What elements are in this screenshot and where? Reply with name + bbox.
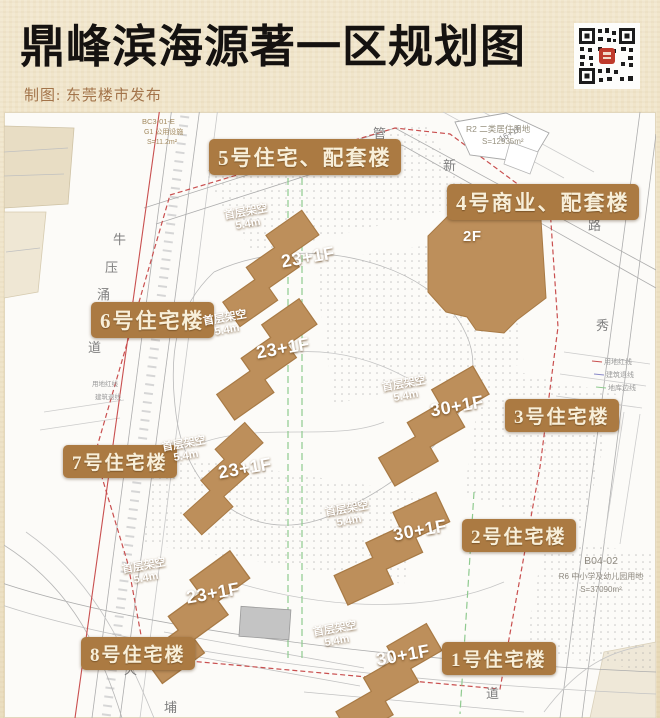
svg-text:R6 中小学及幼儿园用地: R6 中小学及幼儿园用地: [559, 571, 643, 581]
svg-text:压: 压: [105, 260, 118, 275]
svg-text:用地红线: 用地红线: [604, 357, 632, 366]
service-building: [239, 606, 291, 639]
planning-infographic: { "header": { "title": "鼎峰滨海源著一区规划图", "c…: [0, 0, 660, 718]
svg-text:路: 路: [588, 218, 601, 233]
tag-building-8: 8号住宅楼: [81, 637, 195, 670]
svg-text:B04-02: B04-02: [584, 555, 618, 567]
svg-text:地库边线: 地库边线: [608, 383, 636, 392]
svg-text:S=11.2m²: S=11.2m²: [147, 139, 178, 146]
svg-text:牛: 牛: [113, 232, 126, 247]
svg-text:埔: 埔: [164, 700, 177, 715]
svg-text:用地红线: 用地红线: [92, 379, 119, 388]
svg-text:BC3-01-E: BC3-01-E: [142, 117, 175, 126]
qr-code-icon: [576, 25, 638, 87]
svg-text:S=37090m²: S=37090m²: [580, 585, 622, 594]
svg-text:道: 道: [486, 686, 499, 701]
tag-building-7: 7号住宅楼: [63, 445, 177, 478]
svg-text:建筑退线: 建筑退线: [606, 370, 634, 379]
tag-building-6: 6号住宅楼: [91, 302, 214, 338]
svg-text:秀: 秀: [596, 318, 609, 333]
qr-pattern: [576, 25, 638, 87]
tag-building-2: 2号住宅楼: [462, 519, 576, 552]
tag-building-3: 3号住宅楼: [505, 399, 619, 432]
svg-text:G1 公用设施: G1 公用设施: [144, 127, 183, 136]
floors-building-4: 2F: [463, 228, 482, 245]
tag-building-5: 5号住宅、配套楼: [209, 139, 401, 175]
svg-text:建筑退线: 建筑退线: [95, 392, 122, 401]
credit-line: 制图: 东莞楼市发布: [24, 84, 162, 105]
svg-text:道: 道: [88, 340, 101, 355]
svg-text:涌: 涌: [97, 287, 110, 302]
qr-seal: [599, 48, 615, 64]
page-title: 鼎峰滨海源著一区规划图: [20, 24, 580, 71]
tag-building-4: 4号商业、配套楼: [447, 184, 639, 220]
svg-text:新: 新: [443, 158, 456, 173]
tag-building-1: 1号住宅楼: [442, 642, 556, 675]
